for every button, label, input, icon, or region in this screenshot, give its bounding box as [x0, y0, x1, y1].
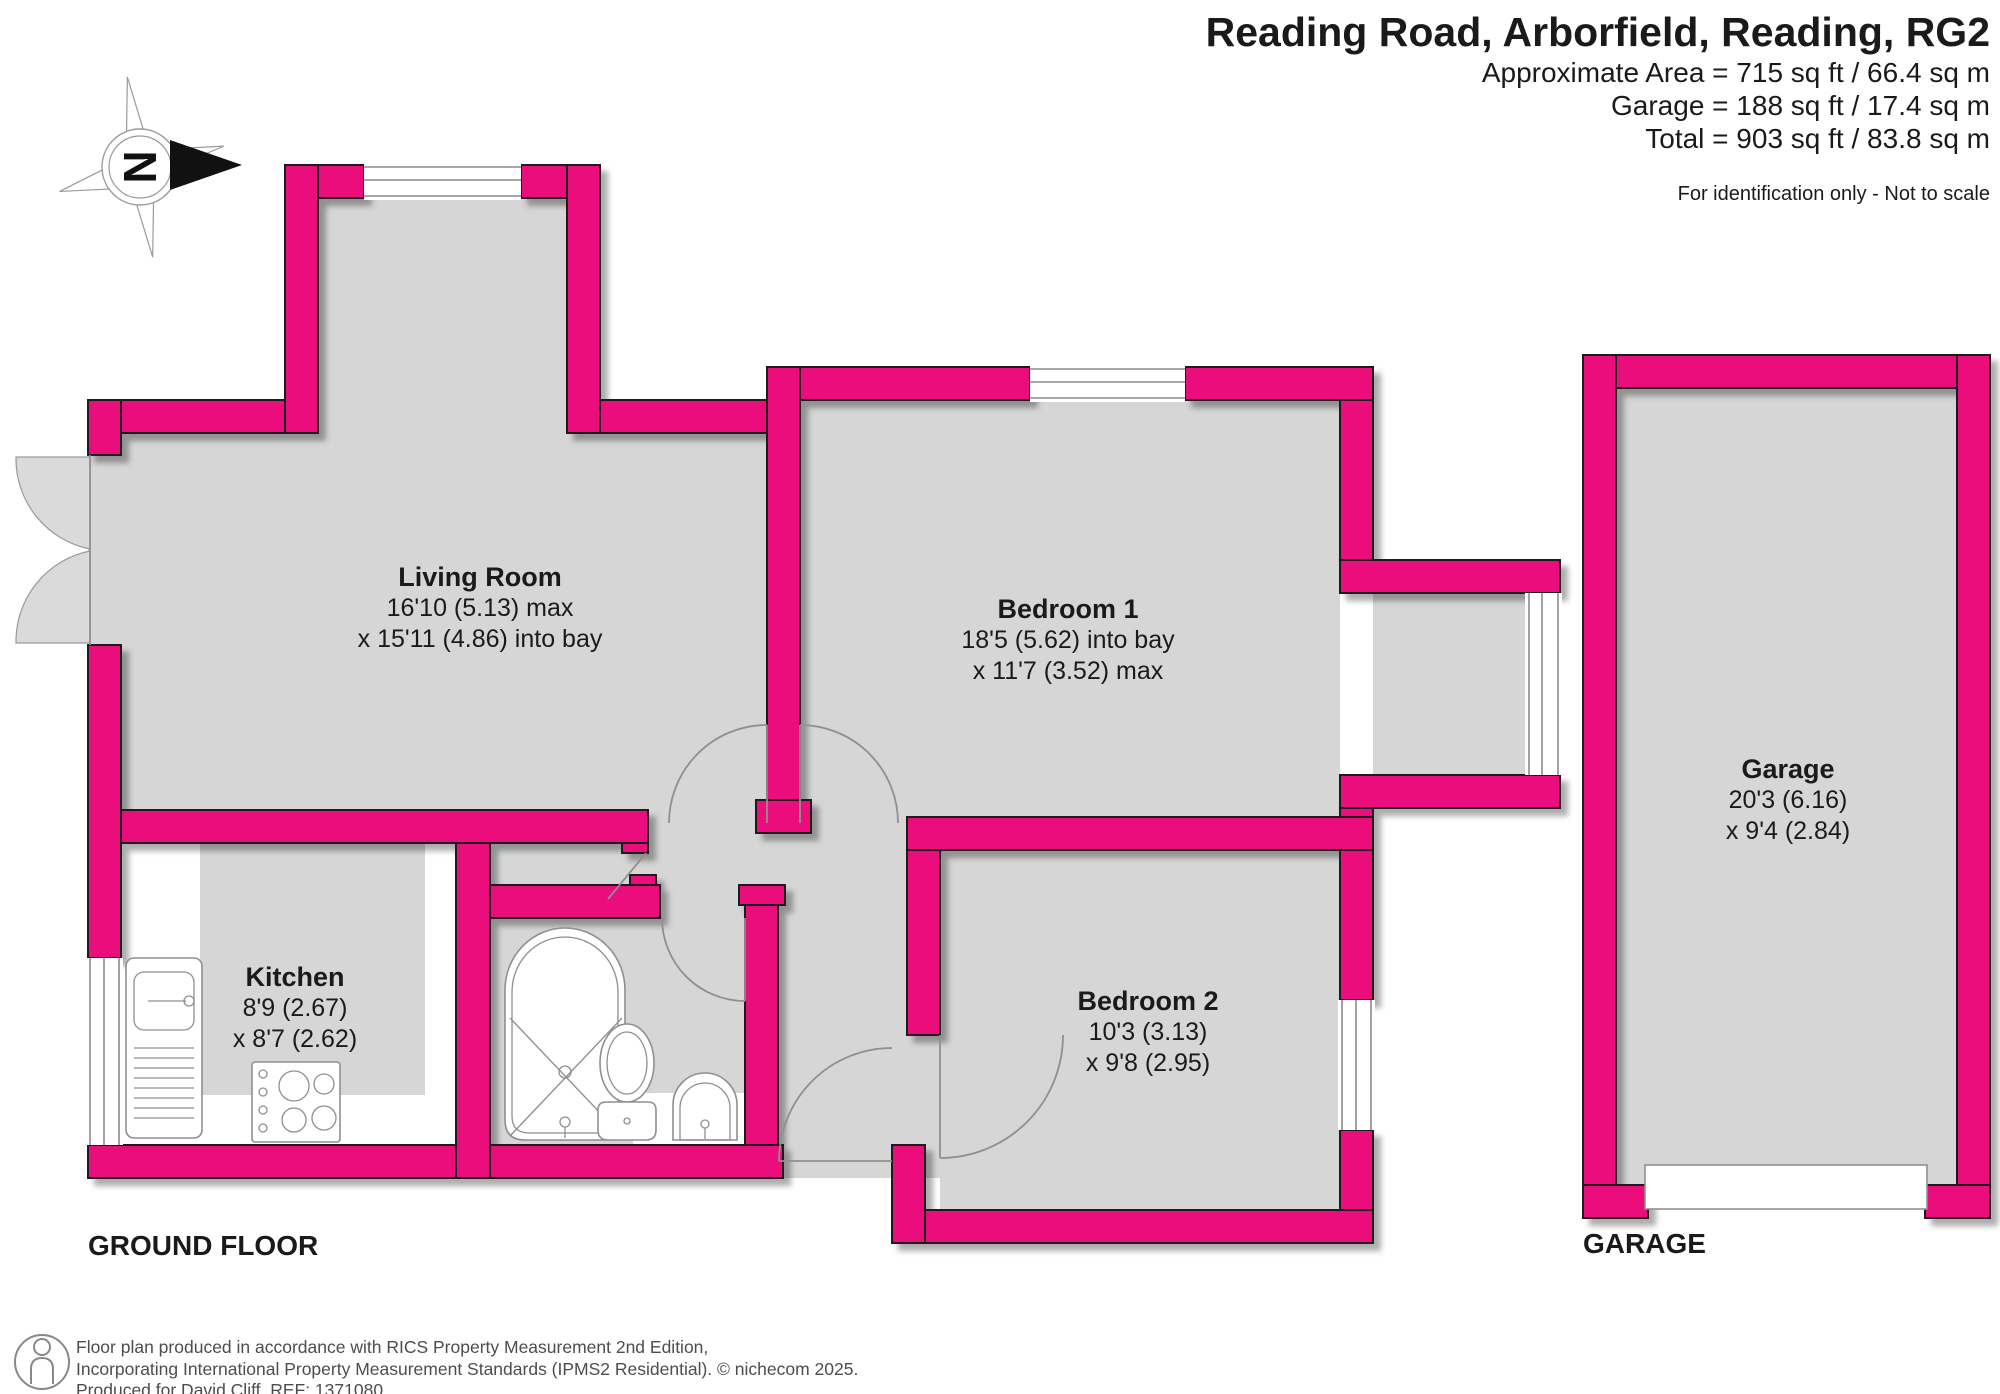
wall-west-b: [88, 645, 121, 958]
wall-bathroom-east-cap: [739, 885, 785, 905]
floorplan-page: N Reading Road, Arborfield, Reading, RG2…: [0, 0, 2000, 1394]
person-icon: [15, 1335, 69, 1389]
garage-label: GARAGE: [1583, 1228, 1706, 1260]
room-name: Kitchen: [233, 961, 357, 993]
floor-areas: [88, 198, 1957, 1210]
toilet: [598, 1024, 656, 1140]
compass-letter: N: [114, 150, 166, 183]
wall-main-south: [88, 1145, 783, 1178]
header: Reading Road, Arborfield, Reading, RG2 A…: [1206, 8, 1990, 206]
basin: [673, 1073, 737, 1140]
footer-line1: Floor plan produced in accordance with R…: [76, 1337, 858, 1359]
living-room-label: Living Room 16'10 (5.13) max x 15'11 (4.…: [358, 561, 603, 655]
wall-north-mid: [600, 400, 767, 433]
room-dim2: x 9'4 (2.84): [1726, 816, 1850, 847]
wall-south-step: [892, 1145, 925, 1243]
wall-bay-top-left: [318, 165, 364, 198]
footer-line3: Produced for David Cliff. REF: 1371080: [76, 1380, 858, 1394]
room-dim1: 20'3 (6.16): [1726, 785, 1850, 816]
wall-bay-right: [567, 165, 600, 433]
ground-floor-label: GROUND FLOOR: [88, 1230, 318, 1262]
footer: Floor plan produced in accordance with R…: [76, 1337, 858, 1394]
front-french-doors: [16, 455, 90, 645]
bedroom2-label: Bedroom 2 10'3 (3.13) x 9'8 (2.95): [1077, 985, 1218, 1079]
hob: [252, 1062, 340, 1142]
wall-bed2-west: [907, 850, 940, 1035]
kitchen-sink: [126, 958, 202, 1138]
kitchen-west-window: [86, 958, 123, 1145]
room-dim2: x 8'7 (2.62): [233, 1024, 357, 1055]
wall-bay-top-right: [521, 165, 567, 198]
garage-wall-east: [1957, 355, 1990, 1218]
garage-room-label: Garage 20'3 (6.16) x 9'4 (2.84): [1726, 753, 1850, 847]
living-bay-window: [364, 163, 521, 200]
kitchen-label: Kitchen 8'9 (2.67) x 8'7 (2.62): [233, 961, 357, 1055]
footer-line2: Incorporating International Property Mea…: [76, 1359, 858, 1381]
wall-east-bay-bottom: [1340, 775, 1560, 808]
garage-wall-north: [1583, 355, 1990, 388]
wall-bed2-south: [892, 1210, 1373, 1243]
room-dim2: x 15'11 (4.86) into bay: [358, 624, 603, 655]
room-name: Bedroom 1: [961, 593, 1174, 625]
bedroom2-east-window: [1338, 1000, 1375, 1130]
wall-bay-left: [285, 165, 318, 433]
wall-kitchen-north: [121, 810, 648, 843]
bedroom1-north-window: [1030, 365, 1185, 402]
north-arrow: N: [45, 65, 242, 269]
wall-kitchen-door-jamb-top: [622, 843, 648, 853]
wall-west-a: [88, 400, 121, 455]
garage-door: [1645, 1165, 1927, 1209]
total-area: Total = 903 sq ft / 83.8 sq m: [1206, 122, 1990, 155]
garage-wall-west: [1583, 355, 1616, 1218]
bedroom1-label: Bedroom 1 18'5 (5.62) into bay x 11'7 (3…: [961, 593, 1174, 687]
garage-wall-south-left: [1583, 1185, 1648, 1218]
wall-divider-endcap: [756, 800, 811, 833]
wall-kitchen-door-jamb-bottom: [630, 875, 656, 885]
living-bay-floor: [318, 198, 567, 433]
wall-bed1-east-upper: [1340, 400, 1373, 560]
room-dim2: x 11'7 (3.52) max: [961, 656, 1174, 687]
garage-area: Garage = 188 sq ft / 17.4 sq m: [1206, 89, 1990, 122]
scale-disclaimer: For identification only - Not to scale: [1206, 183, 1990, 206]
room-dim1: 18'5 (5.62) into bay: [961, 625, 1174, 656]
bedroom1-bay-floor: [1373, 593, 1527, 775]
floorplan-drawing: N: [0, 0, 2000, 1394]
room-name: Living Room: [358, 561, 603, 593]
wall-kitchen-east: [456, 843, 490, 1178]
garage-wall-south-right: [1925, 1185, 1990, 1218]
wall-east-bay-top: [1340, 560, 1560, 593]
wall-bed1-north-a: [800, 367, 1030, 400]
page-title: Reading Road, Arborfield, Reading, RG2: [1206, 8, 1990, 56]
wall-bed2-north: [907, 817, 1373, 850]
wall-bathroom-east: [745, 885, 778, 1145]
room-dim1: 10'3 (3.13): [1077, 1017, 1218, 1048]
room-name: Garage: [1726, 753, 1850, 785]
approximate-area: Approximate Area = 715 sq ft / 66.4 sq m: [1206, 56, 1990, 89]
wall-living-bed1-divider: [767, 367, 800, 823]
wall-bed1-north-b: [1185, 367, 1373, 400]
room-dim2: x 9'8 (2.95): [1077, 1048, 1218, 1079]
room-dim1: 8'9 (2.67): [233, 993, 357, 1024]
bedroom1-bay-window: [1525, 593, 1562, 775]
room-name: Bedroom 2: [1077, 985, 1218, 1017]
room-dim1: 16'10 (5.13) max: [358, 593, 603, 624]
front-door-threshold: [88, 455, 121, 645]
wall-bathroom-north: [490, 885, 660, 918]
